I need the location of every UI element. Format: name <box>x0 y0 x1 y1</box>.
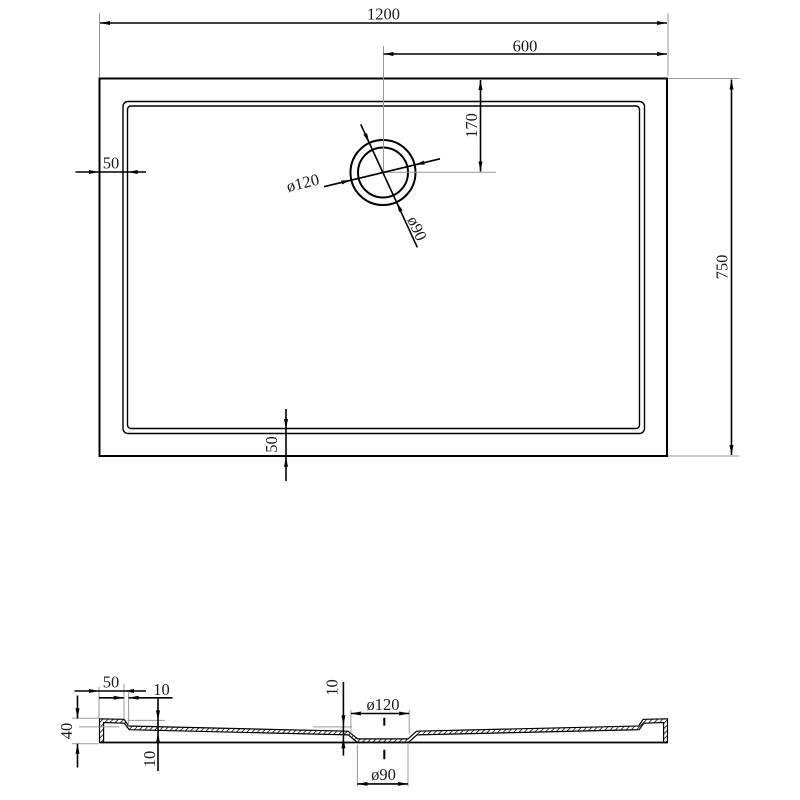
svg-text:10: 10 <box>140 751 159 768</box>
svg-text:50: 50 <box>262 436 281 453</box>
svg-text:ø120: ø120 <box>367 695 400 714</box>
svg-text:170: 170 <box>462 113 481 138</box>
svg-text:1200: 1200 <box>367 5 400 24</box>
svg-text:50: 50 <box>103 673 120 692</box>
svg-text:10: 10 <box>323 679 342 696</box>
svg-text:50: 50 <box>103 154 120 173</box>
svg-text:40: 40 <box>57 723 76 740</box>
svg-text:ø90: ø90 <box>371 765 396 784</box>
svg-text:600: 600 <box>513 37 538 56</box>
svg-text:10: 10 <box>153 680 170 699</box>
svg-text:750: 750 <box>713 255 732 280</box>
